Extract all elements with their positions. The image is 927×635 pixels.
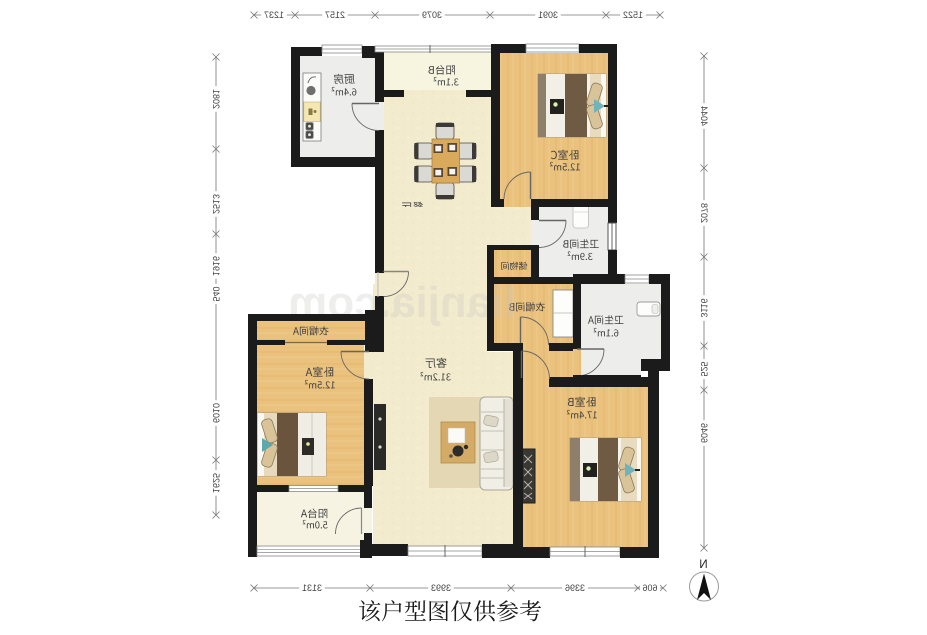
svg-text:3079: 3079 (422, 10, 442, 20)
svg-text:3396: 3396 (565, 583, 585, 593)
svg-text:540: 540 (211, 286, 221, 301)
svg-text:3116: 3116 (699, 298, 709, 317)
svg-text:1522: 1522 (623, 10, 643, 20)
svg-text:1625: 1625 (211, 473, 221, 493)
svg-text:3131: 3131 (302, 583, 322, 593)
svg-text:6046: 6046 (699, 423, 709, 443)
svg-text:2078: 2078 (699, 203, 709, 223)
svg-text:6010: 6010 (211, 403, 221, 423)
svg-text:606: 606 (642, 583, 657, 593)
svg-text:2157: 2157 (325, 10, 345, 20)
svg-text:N: N (699, 559, 707, 571)
svg-text:1916: 1916 (211, 256, 221, 276)
svg-text:3091: 3091 (538, 10, 558, 20)
svg-text:3993: 3993 (431, 583, 451, 593)
svg-text:2081: 2081 (211, 89, 221, 109)
svg-text:1237: 1237 (264, 10, 284, 20)
svg-text:525: 525 (699, 361, 709, 376)
svg-text:2513: 2513 (211, 194, 221, 214)
svg-text:4044: 4044 (699, 106, 709, 126)
